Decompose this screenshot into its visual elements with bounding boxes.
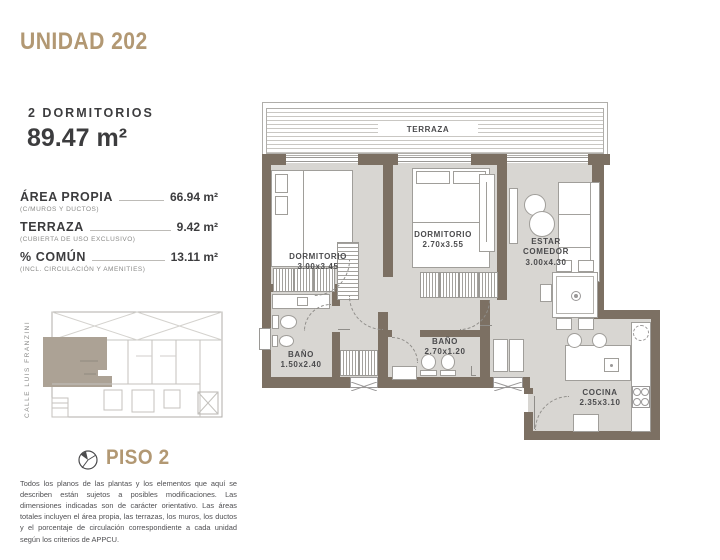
area-value: 9.42 m² — [177, 220, 218, 234]
bidet — [279, 335, 294, 347]
room-name: BAÑO — [270, 350, 332, 360]
area-label: TERRAZA — [20, 220, 84, 234]
area-label: % COMÚN — [20, 250, 86, 264]
wall — [592, 310, 660, 319]
washer — [633, 325, 649, 341]
unit-total-area: 89.47 m² — [27, 124, 127, 153]
door-leaf — [480, 325, 492, 326]
room-label-cocina: COCINA 2.35x3.10 — [560, 388, 640, 409]
chair — [556, 318, 572, 330]
wall — [651, 310, 660, 440]
wall — [471, 154, 507, 165]
room-name: COCINA — [560, 388, 640, 398]
bar-stool — [592, 333, 607, 348]
compass-icon — [76, 448, 100, 472]
sink-drain — [610, 364, 613, 367]
sink — [297, 297, 308, 306]
room-label-dormitorio-1: DORMITORIO 3.00x3.45 — [273, 252, 363, 273]
unit-highlight — [43, 337, 112, 387]
disclaimer-text: Todos los planos de las plantas y los el… — [20, 478, 237, 545]
wall — [332, 332, 340, 388]
area-label: ÁREA PROPIA — [20, 190, 113, 204]
entry-cabinet — [573, 414, 599, 432]
hall-closet — [340, 350, 378, 376]
room-dims: 2.70x3.55 — [398, 240, 488, 250]
laundry-unit — [493, 339, 508, 372]
room-label-terraza: TERRAZA — [378, 124, 478, 136]
area-value: 66.94 m² — [170, 190, 218, 204]
floor-label: PISO 2 — [106, 446, 170, 470]
wall — [524, 388, 533, 394]
chair — [540, 284, 552, 302]
toilet-tank — [420, 370, 437, 376]
pillow — [275, 174, 288, 193]
leader-line — [90, 230, 171, 231]
area-row-propia: ÁREA PROPIA 66.94 m² (C/MUROS Y DUCTOS) — [20, 190, 218, 213]
bidet-base — [272, 335, 278, 347]
wall — [383, 165, 393, 277]
vanity — [392, 366, 417, 380]
sofa-divider — [559, 214, 591, 215]
room-dims: 3.00x4.30 — [510, 258, 582, 268]
area-row-comun: % COMÚN 13.11 m² (INCL. CIRCULACIÓN Y AM… — [20, 250, 218, 273]
toilet — [280, 315, 297, 329]
room-label-bano-2: BAÑO 2.70x1.20 — [410, 337, 480, 358]
window — [259, 328, 271, 350]
shaft-box — [350, 377, 378, 388]
room-name: ESTAR COMEDOR — [510, 237, 582, 258]
area-row-terraza: TERRAZA 9.42 m² (CUBIERTA DE USO EXCLUSI… — [20, 220, 218, 243]
chair — [578, 318, 594, 330]
room-label-estar-comedor: ESTAR COMEDOR 3.00x4.30 — [510, 237, 582, 268]
wardrobe-2 — [420, 272, 498, 298]
bed-sheet-line — [413, 222, 489, 223]
tv-console — [509, 188, 518, 244]
window — [398, 157, 471, 162]
door-leaf — [338, 329, 350, 330]
floorplan-sheet: UNIDAD 202 2 DORMITORIOS 89.47 m² ÁREA P… — [0, 0, 720, 560]
leader-line — [92, 260, 165, 261]
unit-title: UNIDAD 202 — [20, 28, 148, 56]
floor-plan: TERRAZA — [252, 82, 692, 460]
area-value: 13.11 m² — [171, 250, 218, 264]
wall — [524, 431, 660, 440]
room-dims: 2.70x1.20 — [410, 347, 480, 357]
window — [507, 157, 588, 162]
room-dims: 2.35x3.10 — [560, 398, 640, 408]
bidet-base — [440, 370, 456, 376]
wall — [378, 330, 392, 337]
room-label-bano-1: BAÑO 1.50x2.40 — [270, 350, 332, 371]
pillow — [416, 171, 450, 184]
shower-fitting — [471, 366, 476, 376]
window — [286, 157, 358, 162]
unit-type-label: 2 DORMITORIOS — [28, 106, 154, 120]
laundry-unit — [509, 339, 524, 372]
room-name: DORMITORIO — [398, 230, 488, 240]
street-label: CALLE LUIS FRANZINI — [24, 314, 31, 418]
room-dims: 1.50x2.40 — [270, 360, 332, 370]
wall — [497, 165, 507, 300]
area-sublabel: (INCL. CIRCULACIÓN Y AMENITIES) — [20, 266, 218, 273]
shaft-box — [493, 377, 523, 388]
wall — [358, 154, 398, 165]
door-leaf — [534, 396, 535, 429]
site-keyplan-drawing — [40, 306, 224, 422]
room-label-dormitorio-2: DORMITORIO 2.70x3.55 — [398, 230, 488, 251]
bar-stool — [567, 333, 582, 348]
area-sublabel: (C/MUROS Y DUCTOS) — [20, 206, 218, 213]
kitchen-island — [565, 345, 631, 381]
room-dims: 3.00x3.45 — [273, 262, 363, 272]
table-center-dot — [574, 294, 578, 298]
leader-line — [119, 200, 164, 201]
site-keyplan — [40, 306, 224, 422]
pouf — [529, 211, 555, 237]
dining-table — [552, 272, 598, 318]
room-name: DORMITORIO — [273, 252, 363, 262]
pillow — [275, 196, 288, 215]
room-name: BAÑO — [410, 337, 480, 347]
area-sublabel: (CUBIERTA DE USO EXCLUSIVO) — [20, 236, 218, 243]
toilet-tank — [272, 315, 279, 329]
